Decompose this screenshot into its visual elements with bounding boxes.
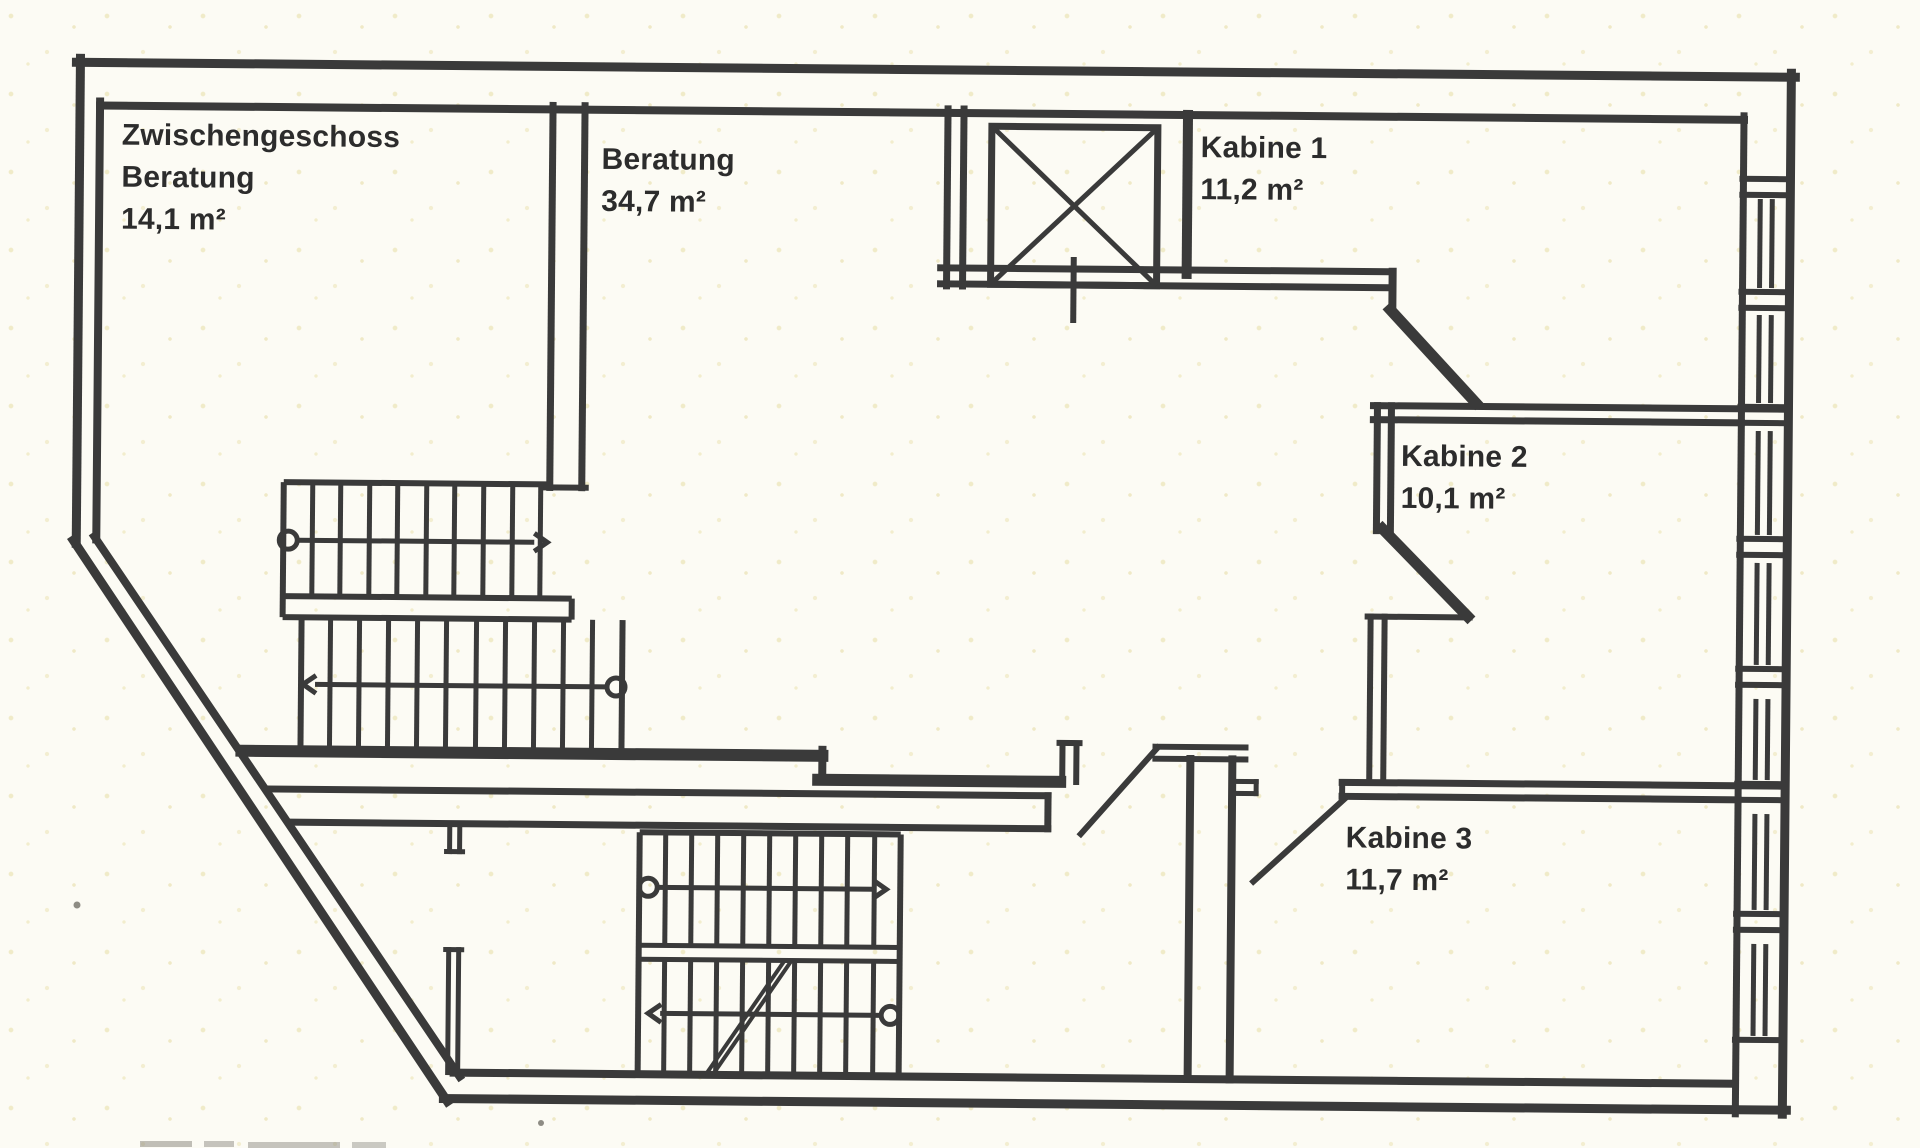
wall-center-east-face [1230, 759, 1233, 1079]
scan-speck [74, 902, 81, 909]
stair-direction-arrow [279, 531, 547, 551]
wall-center-west-face [1188, 759, 1191, 1079]
wall-hall-south-right [818, 780, 1060, 782]
stair-landing-edge [283, 596, 572, 599]
room-name: Zwischengeschoss [122, 119, 401, 154]
wall-beratung-left [582, 106, 585, 488]
elevator-shaft [990, 126, 1158, 323]
wall-center-cap-a [1156, 747, 1246, 748]
stair-edge [300, 617, 301, 746]
wall-kabine1-2-divider-a [1373, 406, 1788, 410]
scan-cutoff-text [248, 1142, 340, 1148]
staircase-upper [277, 482, 626, 754]
wall-kabine2-west-b [1390, 406, 1391, 531]
understair-wall-a [448, 950, 449, 1073]
room-area: 11,2 m² [1200, 173, 1303, 207]
door-swing-hall [1081, 747, 1158, 835]
wall-beratung-right-a [947, 109, 949, 286]
wall-kabine3-north-b [1342, 796, 1738, 799]
wall-kabine2-west-a [1376, 406, 1377, 531]
stair-direction-arrow [303, 675, 625, 696]
wall-right-inner [1735, 116, 1744, 1114]
room-name: Beratung [601, 143, 735, 177]
room-area: 11,7 m² [1345, 863, 1448, 897]
window-glazing-lines [1753, 199, 1772, 1036]
understair-wall-b [458, 950, 459, 1073]
scan-cutoff-text [140, 1141, 192, 1147]
wall-right-outer [1782, 73, 1791, 1114]
wall-corridor-north-face [267, 789, 1048, 796]
room-label-beratung: Beratung 34,7 m² [601, 143, 735, 219]
wall-corridor-south-face [290, 822, 1048, 829]
wall-left-outer [76, 58, 80, 543]
scan-speck [538, 1120, 544, 1126]
elevator-door-tick [1073, 257, 1074, 323]
interior-partitions [541, 105, 1791, 1084]
wall-top-inner [100, 105, 1744, 119]
wall-bottom-inner [454, 1073, 1732, 1084]
room-area: 14,1 m² [121, 203, 226, 237]
wall-top-outer [76, 62, 1795, 77]
wall-diagonal-kabine1 [1390, 310, 1477, 403]
stair-treads [664, 959, 874, 1076]
floor-plan-drawing: Zwischengeschoss Beratung 14,1 m² Beratu… [0, 0, 1920, 1148]
stair-landing-edge [639, 945, 900, 947]
door-swing-kabine3 [1253, 798, 1345, 883]
stair-edge [638, 832, 640, 1074]
room-name: Kabine 3 [1346, 821, 1473, 855]
room-label-zwischengeschoss-beratung: Zwischengeschoss Beratung 14,1 m² [121, 119, 400, 238]
scan-cutoff-text [204, 1141, 234, 1147]
wall-bottom-outer [443, 1099, 1786, 1111]
room-name: Kabine 2 [1401, 440, 1528, 474]
stair-direction-arrow [648, 1004, 899, 1024]
room-area: 34,7 m² [601, 185, 706, 219]
room-label-kabine-1: Kabine 1 11,2 m² [1200, 131, 1327, 207]
room-name: Beratung [121, 161, 255, 195]
wall-beratung-right-b [963, 109, 965, 286]
staircase-lower [638, 832, 901, 1076]
wall-diagonal-kabine2 [1382, 529, 1469, 617]
room-area: 10,1 m² [1401, 482, 1506, 516]
stair-edge [284, 482, 548, 484]
stair-edge [899, 834, 901, 1076]
room-name: Kabine 1 [1201, 131, 1328, 165]
wall-kabine1-2-divider-b [1373, 420, 1741, 423]
wall-kabine2-lower-b [1383, 617, 1384, 783]
wall-hall-south-left [241, 751, 822, 756]
stair-landing-edge [283, 617, 572, 620]
floor-plan: Zwischengeschoss Beratung 14,1 m² Beratu… [0, 0, 1920, 1148]
scan-artifacts [74, 902, 545, 1148]
room-label-kabine-2: Kabine 2 10,1 m² [1401, 440, 1528, 516]
stair-break-line [713, 960, 792, 1076]
wall-kabine1-west [1187, 115, 1188, 274]
wall-kabine2-lower-a [1369, 617, 1370, 783]
wall-left-inner [96, 101, 100, 539]
scan-cutoff-text [352, 1142, 386, 1148]
building-envelope [67, 58, 1795, 1114]
stair-edge [621, 620, 622, 754]
room-label-kabine-3: Kabine 3 11,7 m² [1345, 821, 1472, 897]
wall-zwischengeschoss-right [550, 105, 553, 487]
wall-kabine3-north-a [1342, 782, 1785, 786]
